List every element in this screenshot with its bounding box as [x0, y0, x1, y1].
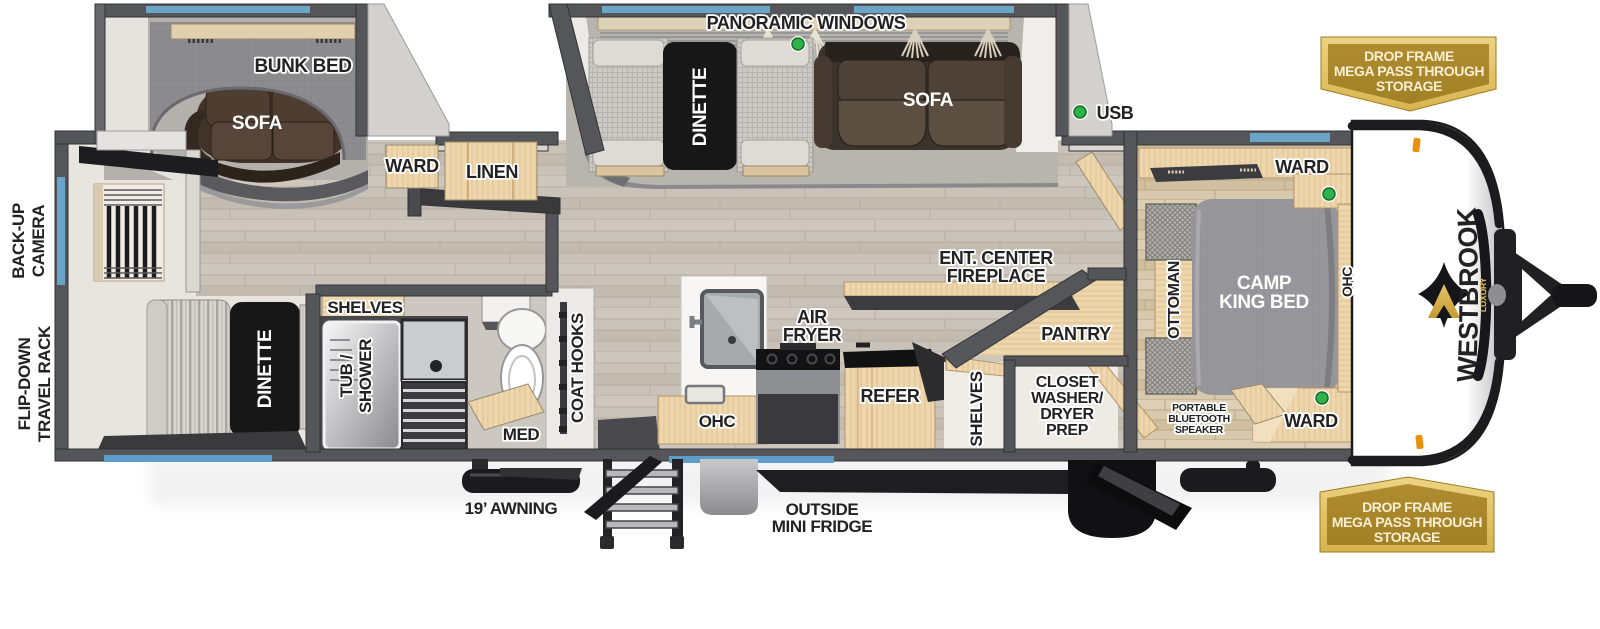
- svg-text:SOFA: SOFA: [903, 90, 954, 111]
- svg-text:CAMERA: CAMERA: [29, 205, 48, 277]
- svg-text:MED: MED: [503, 425, 540, 444]
- svg-text:COAT HOOKS: COAT HOOKS: [568, 313, 587, 423]
- svg-text:SHOWER: SHOWER: [356, 339, 375, 413]
- svg-text:LINEN: LINEN: [466, 162, 518, 182]
- svg-text:REFER: REFER: [860, 386, 919, 406]
- svg-text:SHELVES: SHELVES: [967, 371, 986, 446]
- svg-text:USB: USB: [1097, 103, 1134, 123]
- svg-text:DINETTE: DINETTE: [690, 68, 711, 146]
- svg-text:FLIP-DOWN: FLIP-DOWN: [15, 338, 34, 431]
- svg-text:AIR: AIR: [797, 307, 827, 327]
- svg-text:BUNK BED: BUNK BED: [254, 56, 351, 77]
- svg-text:SPEAKER: SPEAKER: [1175, 424, 1224, 436]
- svg-text:WARD: WARD: [1275, 157, 1329, 177]
- svg-text:FIREPLACE: FIREPLACE: [947, 266, 1046, 286]
- svg-text:MEGA PASS THROUGH: MEGA PASS THROUGH: [1332, 514, 1483, 530]
- svg-text:KING BED: KING BED: [1219, 292, 1309, 313]
- svg-text:PREP: PREP: [1046, 422, 1089, 439]
- svg-text:SOFA: SOFA: [232, 113, 283, 134]
- svg-text:DROP FRAME: DROP FRAME: [1362, 499, 1452, 515]
- svg-text:WASHER/: WASHER/: [1031, 390, 1104, 407]
- svg-text:CAMP: CAMP: [1237, 273, 1292, 294]
- svg-text:STORAGE: STORAGE: [1374, 529, 1440, 545]
- svg-text:CLOSET: CLOSET: [1036, 374, 1099, 391]
- svg-text:STORAGE: STORAGE: [1376, 78, 1442, 94]
- svg-text:BACK-UP: BACK-UP: [9, 203, 28, 279]
- svg-text:OHC: OHC: [699, 412, 736, 431]
- svg-text:DRYER: DRYER: [1040, 406, 1094, 423]
- svg-text:MEGA PASS THROUGH: MEGA PASS THROUGH: [1334, 63, 1485, 79]
- svg-text:ENT. CENTER: ENT. CENTER: [939, 248, 1053, 268]
- svg-text:DINETTE: DINETTE: [255, 330, 276, 408]
- svg-text:DROP FRAME: DROP FRAME: [1364, 48, 1454, 64]
- svg-text:TRAVEL RACK: TRAVEL RACK: [35, 325, 54, 442]
- svg-text:OTTOMAN: OTTOMAN: [1166, 261, 1183, 339]
- svg-text:WARD: WARD: [1284, 411, 1338, 431]
- svg-text:PANORAMIC WINDOWS: PANORAMIC WINDOWS: [707, 13, 906, 33]
- svg-text:WARD: WARD: [385, 156, 439, 176]
- svg-text:TUB /: TUB /: [337, 354, 356, 397]
- svg-text:LUXURY: LUXURY: [1478, 277, 1488, 312]
- svg-text:PANTRY: PANTRY: [1041, 324, 1111, 344]
- svg-text:OHC: OHC: [1339, 267, 1355, 297]
- svg-text:SHELVES: SHELVES: [327, 298, 402, 317]
- svg-text:MINI FRIDGE: MINI FRIDGE: [772, 517, 872, 536]
- svg-text:FRYER: FRYER: [783, 325, 842, 345]
- svg-text:19’ AWNING: 19’ AWNING: [465, 499, 558, 518]
